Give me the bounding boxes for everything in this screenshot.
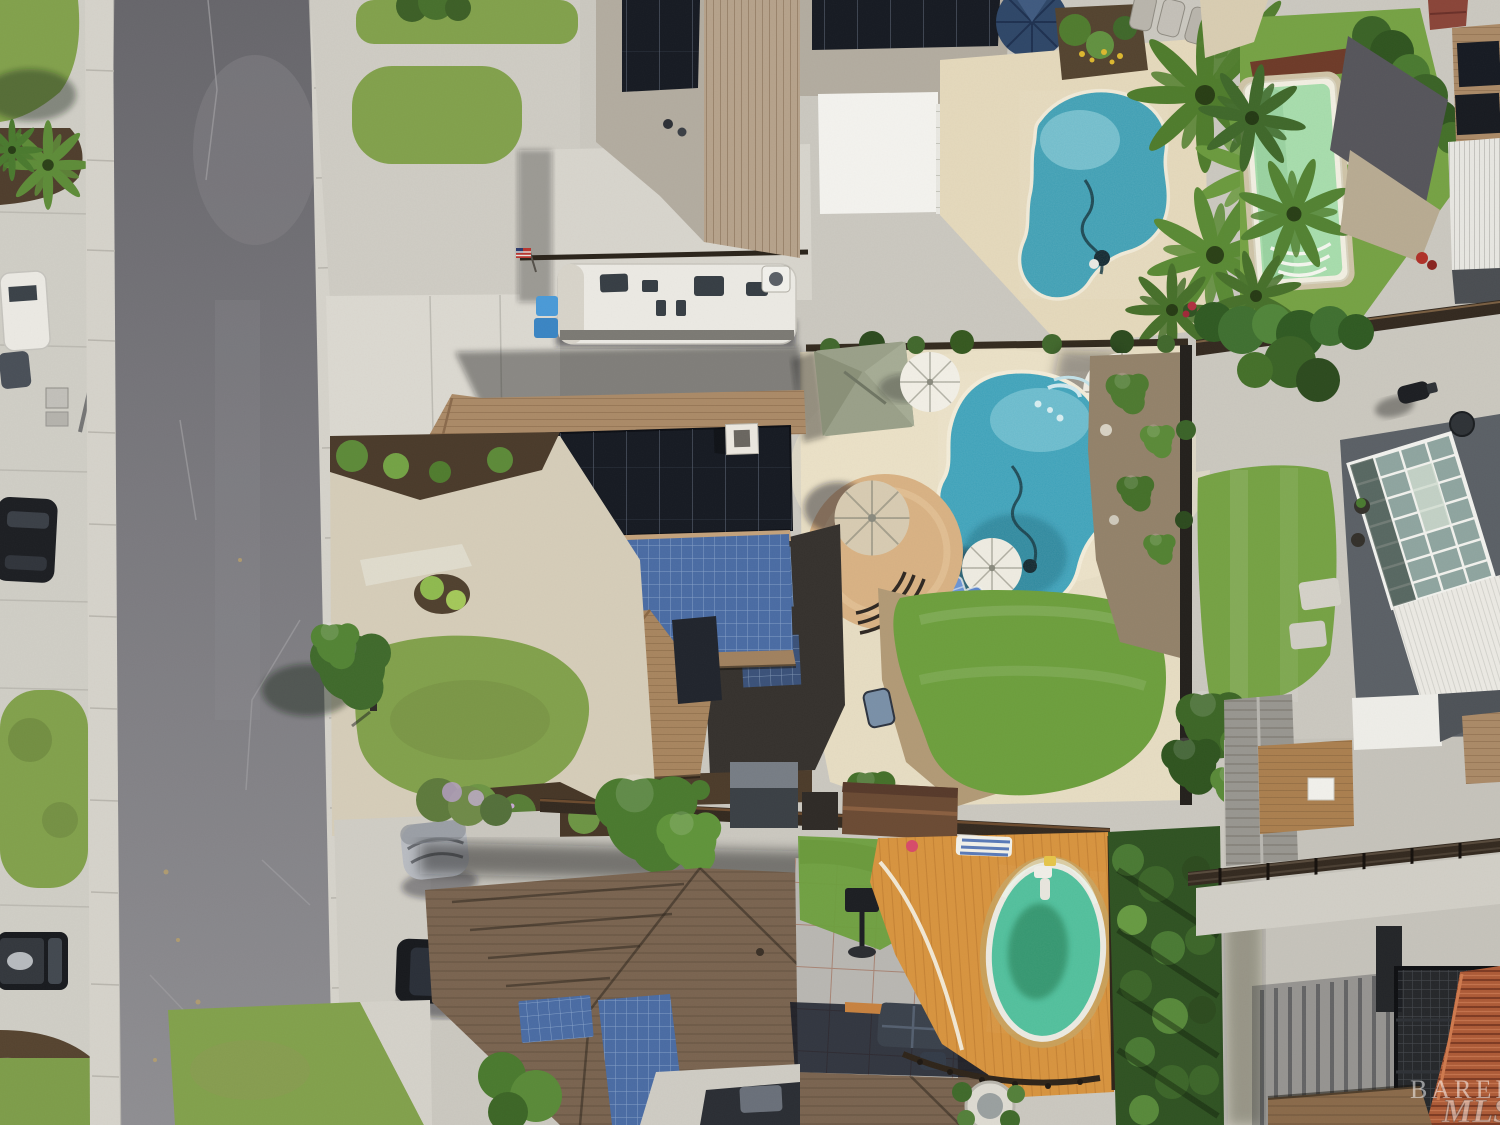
watermark-line2: MLS: [1441, 1093, 1500, 1125]
photo-grain-dark: [0, 0, 1500, 1125]
aerial-photo: BAREIS MLS: [0, 0, 1500, 1125]
